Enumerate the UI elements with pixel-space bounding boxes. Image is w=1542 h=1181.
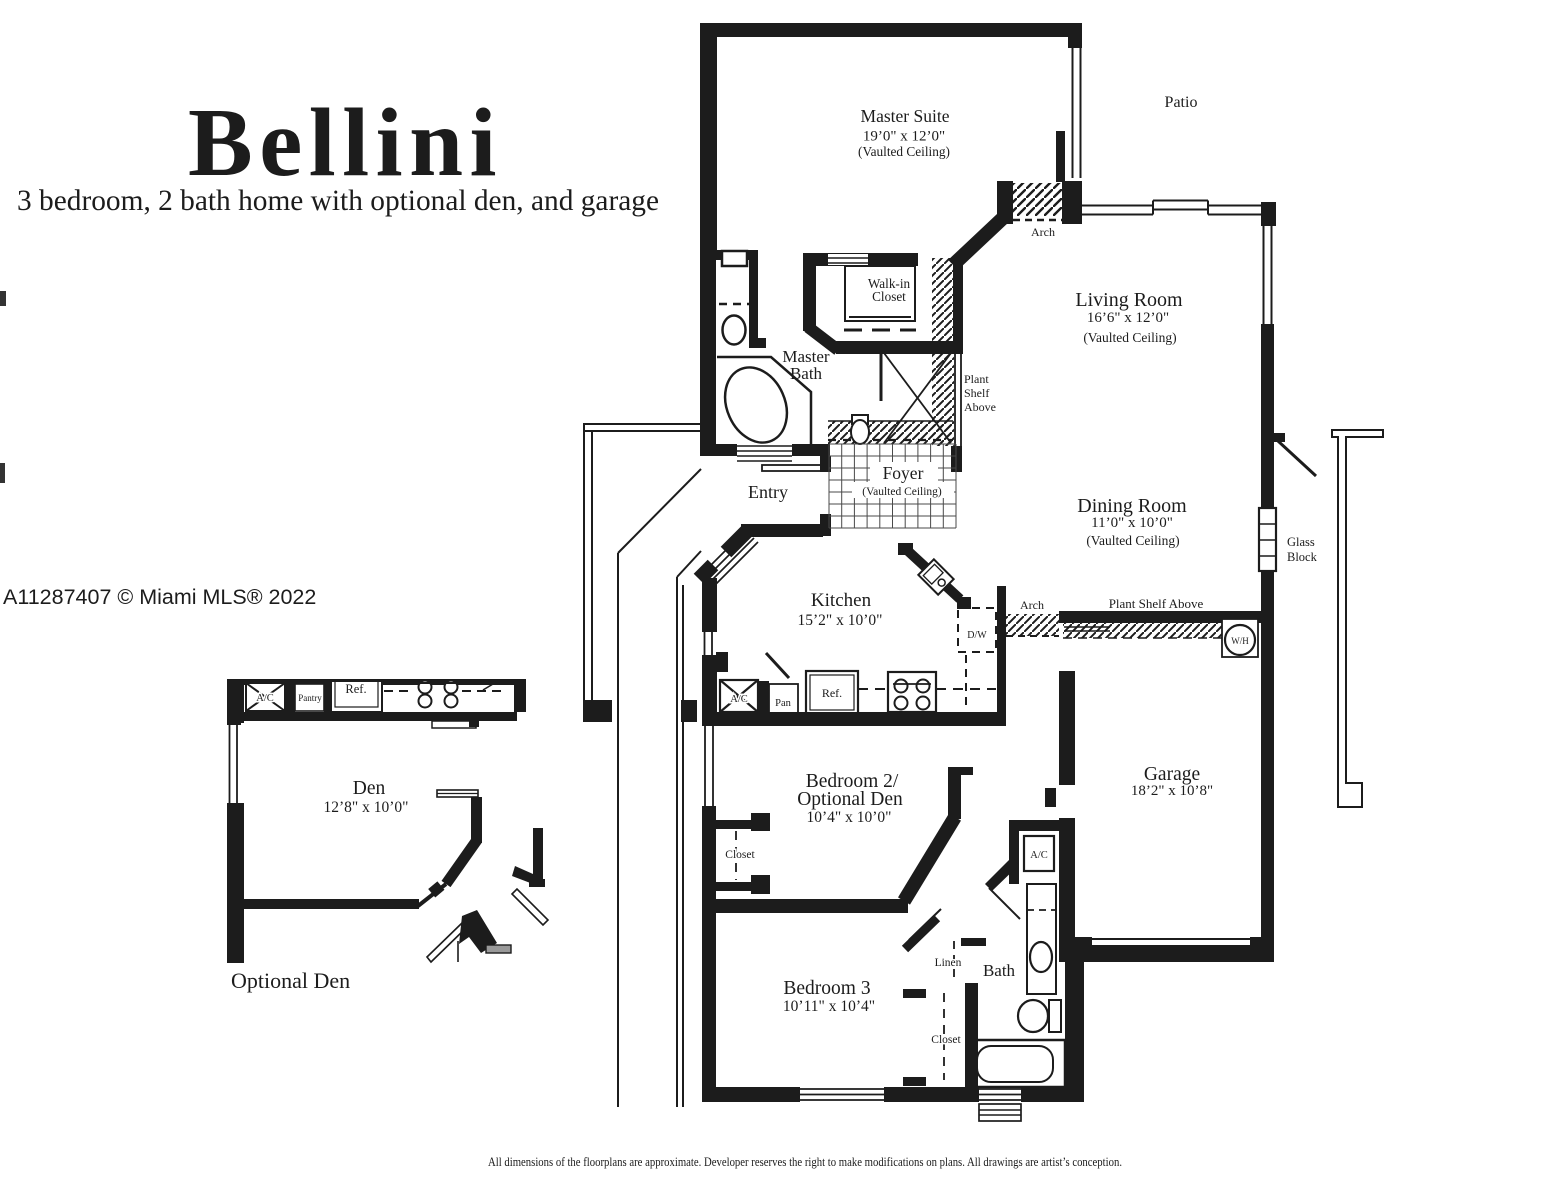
svg-text:Block: Block [1287, 550, 1318, 564]
svg-text:Shelf: Shelf [964, 386, 989, 400]
svg-text:Ref.: Ref. [345, 682, 366, 696]
svg-text:Master Suite: Master Suite [861, 106, 950, 126]
svg-text:D/W: D/W [967, 630, 987, 641]
svg-text:10’4" x 10’0": 10’4" x 10’0" [807, 809, 892, 826]
svg-text:A/C: A/C [1030, 850, 1048, 861]
svg-text:Bedroom 3: Bedroom 3 [783, 978, 870, 999]
svg-text:(Vaulted Ceiling): (Vaulted Ceiling) [1086, 533, 1179, 548]
svg-text:Kitchen: Kitchen [811, 590, 872, 611]
svg-text:Above: Above [964, 400, 996, 414]
svg-text:W/H: W/H [1231, 636, 1249, 646]
svg-text:A11287407 © Miami MLS® 2022: A11287407 © Miami MLS® 2022 [3, 585, 316, 609]
svg-text:A/C: A/C [730, 694, 748, 705]
svg-text:11’0" x 10’0": 11’0" x 10’0" [1091, 515, 1173, 531]
svg-text:A/C: A/C [256, 693, 274, 704]
svg-text:Patio: Patio [1165, 94, 1198, 111]
svg-text:Closet: Closet [872, 289, 906, 304]
svg-text:All dimensions of the floorpla: All dimensions of the floorplans are app… [488, 1154, 1122, 1169]
svg-text:12’8" x 10’0": 12’8" x 10’0" [324, 799, 409, 816]
svg-text:Dining Room: Dining Room [1077, 495, 1187, 517]
svg-text:18’2" x 10’8": 18’2" x 10’8" [1131, 783, 1213, 799]
svg-text:Bath: Bath [983, 961, 1016, 980]
svg-text:Garage: Garage [1144, 764, 1200, 785]
svg-text:(Vaulted Ceiling): (Vaulted Ceiling) [1083, 330, 1176, 345]
svg-text:Closet: Closet [931, 1034, 961, 1046]
svg-text:3 bedroom, 2 bath home with op: 3 bedroom, 2 bath home with optional den… [17, 184, 659, 217]
svg-text:Optional Den: Optional Den [231, 968, 350, 993]
svg-text:Glass: Glass [1287, 535, 1315, 549]
svg-text:Entry: Entry [748, 482, 788, 502]
svg-text:Plant: Plant [964, 372, 989, 386]
svg-text:Ref.: Ref. [822, 686, 842, 700]
svg-text:Den: Den [353, 778, 386, 799]
svg-text:Arch: Arch [1031, 225, 1055, 239]
svg-text:(Vaulted Ceiling): (Vaulted Ceiling) [858, 144, 950, 159]
svg-text:Plant Shelf Above: Plant Shelf Above [1109, 596, 1204, 611]
svg-text:Pan: Pan [775, 698, 792, 709]
svg-text:Optional Den: Optional Den [797, 789, 903, 810]
svg-text:Arch: Arch [1020, 598, 1044, 612]
svg-text:Bellini: Bellini [188, 89, 503, 196]
svg-text:Pantry: Pantry [298, 693, 322, 703]
svg-text:15’2" x 10’0": 15’2" x 10’0" [798, 612, 883, 629]
svg-text:Foyer: Foyer [883, 463, 924, 483]
svg-text:10’11" x 10’4": 10’11" x 10’4" [783, 998, 875, 1015]
svg-text:19’0" x 12’0": 19’0" x 12’0" [863, 129, 945, 145]
svg-text:Closet: Closet [725, 849, 755, 861]
svg-text:Living Room: Living Room [1075, 289, 1183, 311]
svg-text:Bath: Bath [790, 364, 823, 383]
svg-text:16’6" x 12’0": 16’6" x 12’0" [1087, 310, 1169, 326]
svg-text:(Vaulted Ceiling): (Vaulted Ceiling) [862, 486, 942, 498]
svg-text:Linen: Linen [935, 957, 962, 969]
